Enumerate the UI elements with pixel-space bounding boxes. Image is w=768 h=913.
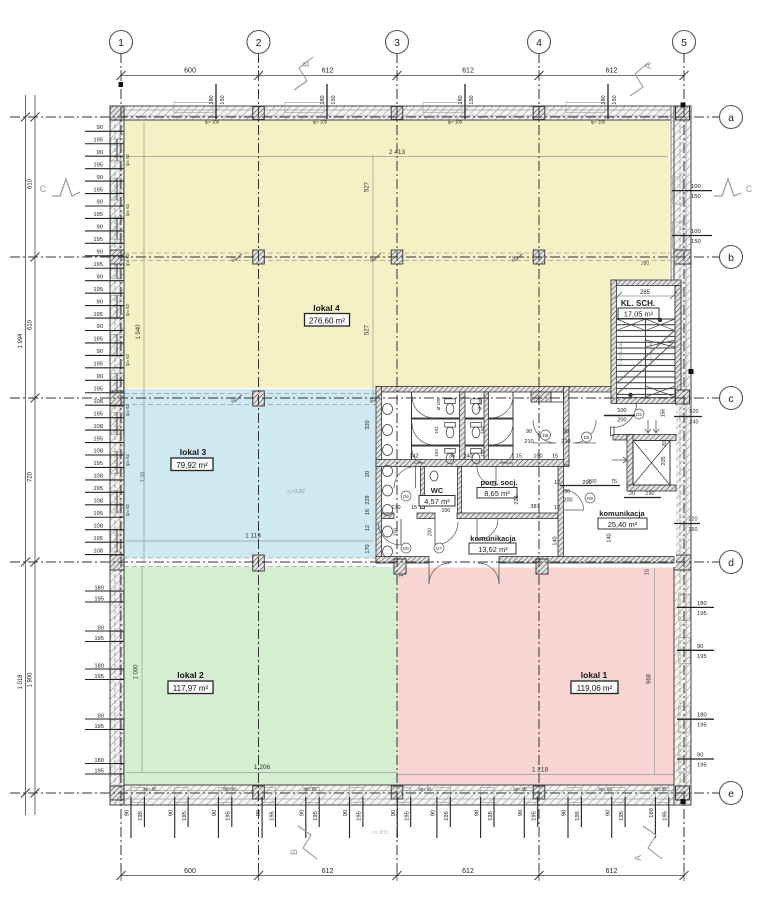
svg-text:90: 90 — [563, 429, 569, 435]
svg-text:180: 180 — [94, 664, 104, 670]
svg-text:90: 90 — [697, 644, 703, 650]
svg-text:bp= 85: bp= 85 — [654, 787, 668, 792]
svg-text:195: 195 — [93, 287, 103, 293]
svg-text:195: 195 — [226, 811, 232, 821]
svg-text:D5: D5 — [543, 433, 549, 438]
svg-text:4: 4 — [536, 37, 542, 49]
svg-text:195: 195 — [313, 811, 319, 821]
svg-text:17 x 17,6 x 28: 17 x 17,6 x 28 — [619, 343, 623, 367]
svg-text:180: 180 — [697, 713, 707, 719]
svg-text:komunikacja: komunikacja — [599, 509, 645, 518]
svg-text:117,97 m²: 117,97 m² — [173, 684, 209, 693]
svg-text:90: 90 — [97, 250, 103, 256]
svg-text:108: 108 — [93, 424, 103, 430]
svg-text:90: 90 — [300, 810, 306, 816]
svg-text:90: 90 — [97, 200, 103, 206]
svg-text:20: 20 — [365, 471, 371, 477]
svg-text:610: 610 — [28, 178, 34, 189]
svg-text:195: 195 — [697, 723, 707, 729]
svg-text:195: 195 — [269, 811, 275, 821]
svg-text:tp= 100: tp= 100 — [448, 120, 463, 125]
svg-text:C: C — [746, 184, 753, 194]
svg-text:90: 90 — [125, 810, 131, 816]
svg-text:140: 140 — [553, 536, 559, 545]
svg-text:101: 101 — [434, 426, 439, 434]
svg-text:100: 100 — [691, 184, 701, 190]
svg-text:tp= 100: tp= 100 — [205, 120, 220, 125]
svg-text:90: 90 — [98, 714, 104, 720]
svg-text:25,40 m²: 25,40 m² — [608, 520, 638, 529]
svg-text:260: 260 — [688, 527, 697, 533]
svg-text:195: 195 — [575, 811, 581, 821]
svg-text:20: 20 — [662, 441, 668, 447]
svg-text:5: 5 — [681, 37, 687, 49]
svg-text:90: 90 — [474, 810, 480, 816]
svg-text:500: 500 — [617, 408, 626, 414]
svg-text:3: 3 — [394, 37, 400, 49]
svg-text:276,60 m²: 276,60 m² — [309, 317, 345, 326]
svg-text:612: 612 — [322, 868, 334, 875]
svg-text:16: 16 — [365, 509, 371, 515]
svg-text:WC: WC — [431, 486, 444, 495]
svg-text:210: 210 — [561, 439, 570, 445]
svg-text:Ø 100: Ø 100 — [478, 397, 483, 410]
svg-text:195: 195 — [663, 811, 669, 821]
svg-text:90: 90 — [526, 429, 532, 435]
svg-text:bp= 85: bp= 85 — [224, 787, 238, 792]
svg-text:200: 200 — [428, 528, 434, 537]
svg-text:200: 200 — [587, 479, 596, 485]
svg-text:90: 90 — [98, 626, 104, 632]
svg-text:200: 200 — [563, 498, 572, 504]
svg-text:90: 90 — [605, 810, 611, 816]
svg-text:e: e — [728, 788, 734, 800]
svg-text:lokal 3: lokal 3 — [180, 447, 207, 457]
svg-text:150: 150 — [691, 194, 701, 200]
svg-text:1 018: 1 018 — [18, 674, 24, 690]
svg-text:tp= 62: tp= 62 — [125, 353, 130, 365]
svg-text:610: 610 — [28, 319, 34, 330]
svg-text:195: 195 — [93, 312, 103, 318]
svg-text:C: C — [40, 184, 47, 194]
svg-text:170: 170 — [391, 505, 400, 511]
svg-text:108: 108 — [93, 523, 103, 529]
svg-text:280: 280 — [641, 261, 650, 267]
svg-text:205: 205 — [661, 456, 667, 465]
svg-text:240: 240 — [463, 454, 472, 460]
svg-text:b: b — [728, 252, 734, 264]
svg-text:195: 195 — [93, 511, 103, 517]
svg-text:1 900: 1 900 — [28, 672, 34, 688]
svg-text:tp= 62: tp= 62 — [125, 303, 130, 315]
svg-text:D2: D2 — [636, 412, 642, 417]
svg-text:612: 612 — [322, 68, 334, 75]
svg-text:90: 90 — [97, 324, 103, 330]
svg-text:387: 387 — [530, 504, 539, 510]
svg-text:265: 265 — [640, 290, 651, 296]
svg-text:90: 90 — [97, 349, 103, 355]
svg-text:79,92 m²: 79,92 m² — [176, 461, 208, 470]
svg-text:90: 90 — [97, 274, 103, 280]
svg-text:195: 195 — [93, 461, 103, 467]
svg-text:lokal 4: lokal 4 — [313, 303, 340, 313]
svg-text:103: 103 — [434, 449, 439, 457]
svg-text:12: 12 — [365, 525, 371, 531]
svg-text:1 206: 1 206 — [254, 764, 271, 771]
svg-text:90: 90 — [391, 810, 397, 816]
svg-text:bp= 85: bp= 85 — [599, 787, 613, 792]
svg-text:90: 90 — [97, 125, 103, 131]
svg-text:20: 20 — [629, 491, 635, 497]
svg-text:108: 108 — [93, 399, 103, 405]
svg-text:210: 210 — [524, 439, 533, 445]
svg-text:12: 12 — [554, 505, 560, 511]
svg-text:150: 150 — [533, 454, 542, 460]
svg-text:r.d. Ø15: r.d. Ø15 — [371, 830, 389, 836]
svg-text:1 994: 1 994 — [18, 333, 24, 349]
svg-text:15: 15 — [411, 505, 417, 511]
svg-text:63: 63 — [369, 397, 375, 403]
svg-text:108: 108 — [93, 449, 103, 455]
svg-text:a: a — [728, 112, 734, 124]
svg-text:lokal 1: lokal 1 — [581, 670, 608, 680]
svg-text:150: 150 — [691, 239, 701, 245]
svg-text:229: 229 — [514, 495, 520, 504]
svg-text:195: 195 — [93, 362, 103, 368]
svg-text:320: 320 — [365, 420, 371, 429]
svg-text:156: 156 — [661, 409, 667, 418]
svg-text:90: 90 — [97, 150, 103, 156]
svg-text:lokal 2: lokal 2 — [177, 670, 204, 680]
svg-text:15: 15 — [552, 454, 558, 460]
svg-text:1 940: 1 940 — [136, 324, 142, 340]
svg-text:180: 180 — [649, 808, 655, 818]
svg-text:90: 90 — [97, 225, 103, 231]
svg-text:15: 15 — [516, 454, 522, 460]
svg-text:D6: D6 — [403, 546, 409, 551]
svg-text:bp= 85: bp= 85 — [304, 787, 318, 792]
svg-text:63: 63 — [231, 397, 237, 403]
svg-text:tp= 62: tp= 62 — [125, 453, 130, 465]
svg-text:150: 150 — [469, 95, 475, 104]
svg-text:180: 180 — [320, 95, 326, 104]
svg-text:12: 12 — [554, 480, 560, 486]
svg-text:90: 90 — [431, 810, 437, 816]
svg-text:90: 90 — [343, 810, 349, 816]
svg-text:612: 612 — [462, 68, 474, 75]
svg-text:△+3,82: △+3,82 — [287, 489, 305, 495]
svg-text:195: 195 — [94, 724, 104, 730]
svg-text:195: 195 — [93, 486, 103, 492]
svg-text:90: 90 — [697, 753, 703, 759]
svg-text:195: 195 — [93, 536, 103, 542]
svg-text:150: 150 — [331, 95, 337, 104]
svg-text:90: 90 — [168, 810, 174, 816]
svg-text:104: 104 — [480, 426, 485, 434]
svg-text:200: 200 — [617, 418, 626, 424]
svg-text:tp= 62: tp= 62 — [125, 253, 130, 265]
svg-text:195: 195 — [93, 137, 103, 143]
svg-text:527: 527 — [365, 324, 371, 335]
svg-text:B: B — [289, 849, 299, 855]
svg-text:195: 195 — [93, 411, 103, 417]
svg-text:A: A — [633, 855, 643, 861]
svg-text:190: 190 — [645, 491, 654, 497]
svg-text:A: A — [643, 63, 653, 69]
svg-text:tp= 62: tp= 62 — [125, 203, 130, 215]
svg-text:195: 195 — [93, 237, 103, 243]
svg-text:D7: D7 — [436, 546, 442, 551]
svg-text:195: 195 — [532, 811, 538, 821]
svg-text:d: d — [728, 557, 734, 569]
svg-text:612: 612 — [462, 868, 474, 875]
svg-text:36: 36 — [449, 454, 455, 460]
svg-text:150: 150 — [220, 95, 226, 104]
svg-text:D5: D5 — [584, 435, 590, 440]
svg-text:195: 195 — [93, 436, 103, 442]
svg-text:bp= 85: bp= 85 — [144, 787, 158, 792]
svg-text:520: 520 — [689, 409, 698, 415]
svg-text:1 218: 1 218 — [532, 767, 549, 774]
svg-text:150: 150 — [612, 95, 618, 104]
svg-text:63: 63 — [231, 256, 237, 262]
svg-text:180: 180 — [601, 95, 607, 104]
svg-text:195: 195 — [94, 597, 104, 603]
svg-text:Ø 100: Ø 100 — [436, 397, 441, 410]
svg-text:195: 195 — [444, 811, 450, 821]
svg-text:195: 195 — [93, 262, 103, 268]
svg-text:90: 90 — [518, 810, 524, 816]
svg-text:195: 195 — [93, 212, 103, 218]
svg-text:1 000: 1 000 — [134, 664, 140, 680]
svg-text:195: 195 — [405, 811, 411, 821]
svg-text:240: 240 — [689, 420, 698, 426]
svg-text:90: 90 — [97, 374, 103, 380]
svg-text:108: 108 — [93, 548, 103, 554]
svg-text:612: 612 — [606, 868, 618, 875]
svg-text:2: 2 — [256, 37, 262, 49]
svg-text:119,06 m²: 119,06 m² — [577, 684, 613, 693]
svg-text:90: 90 — [562, 810, 568, 816]
svg-text:108: 108 — [93, 499, 103, 505]
svg-text:90: 90 — [97, 175, 103, 181]
svg-text:7,20: 7,20 — [141, 472, 147, 483]
svg-text:195: 195 — [697, 611, 707, 617]
svg-text:17,05 m²: 17,05 m² — [624, 310, 654, 319]
svg-text:D6: D6 — [403, 494, 409, 499]
svg-text:195: 195 — [357, 811, 363, 821]
svg-text:180: 180 — [94, 586, 104, 592]
svg-text:140: 140 — [607, 533, 613, 542]
svg-text:195: 195 — [488, 811, 494, 821]
svg-text:170: 170 — [365, 544, 371, 553]
svg-text:600: 600 — [184, 868, 196, 875]
svg-text:17 x 17,6 x 28: 17 x 17,6 x 28 — [649, 343, 653, 367]
svg-text:180: 180 — [94, 758, 104, 764]
svg-text:1: 1 — [118, 37, 124, 49]
svg-text:612: 612 — [606, 68, 618, 75]
svg-text:195: 195 — [94, 674, 104, 680]
svg-text:90: 90 — [212, 810, 218, 816]
svg-text:tp= 62: tp= 62 — [125, 153, 130, 165]
svg-text:108: 108 — [93, 474, 103, 480]
svg-text:63: 63 — [369, 256, 375, 262]
svg-text:D8: D8 — [587, 496, 593, 501]
svg-text:229: 229 — [365, 495, 371, 504]
svg-text:195: 195 — [93, 162, 103, 168]
svg-text:tp= 100: tp= 100 — [313, 120, 328, 125]
svg-text:13,62 m²: 13,62 m² — [478, 545, 508, 554]
svg-text:B: B — [301, 61, 311, 67]
svg-text:90: 90 — [97, 299, 103, 305]
svg-text:600: 600 — [184, 68, 196, 75]
svg-text:180: 180 — [697, 601, 707, 607]
svg-text:720: 720 — [28, 471, 34, 482]
svg-text:tp= 62: tp= 62 — [125, 403, 130, 415]
svg-text:tp= 62: tp= 62 — [125, 503, 130, 515]
svg-text:KL. SCH.: KL. SCH. — [621, 299, 655, 308]
svg-text:75: 75 — [611, 479, 617, 485]
svg-text:220: 220 — [688, 517, 697, 523]
svg-text:90: 90 — [256, 810, 262, 816]
svg-text:195: 195 — [94, 636, 104, 642]
svg-text:195: 195 — [94, 769, 104, 775]
svg-text:200: 200 — [442, 508, 451, 514]
svg-text:195: 195 — [93, 337, 103, 343]
svg-text:180: 180 — [209, 95, 215, 104]
svg-text:100: 100 — [691, 229, 701, 235]
svg-text:8,65 m²: 8,65 m² — [484, 489, 510, 498]
svg-text:195: 195 — [182, 811, 188, 821]
svg-text:342: 342 — [409, 454, 418, 460]
svg-text:180: 180 — [458, 95, 464, 104]
svg-text:195: 195 — [697, 763, 707, 769]
svg-text:bp= 85: bp= 85 — [514, 787, 528, 792]
svg-text:105: 105 — [480, 449, 485, 457]
svg-text:195: 195 — [697, 654, 707, 660]
svg-text:c: c — [728, 393, 733, 405]
svg-text:bp= 85: bp= 85 — [419, 787, 433, 792]
svg-text:968: 968 — [647, 673, 653, 684]
svg-text:195: 195 — [93, 386, 103, 392]
svg-text:15: 15 — [645, 569, 651, 575]
svg-text:527: 527 — [365, 181, 371, 192]
svg-text:4,57 m²: 4,57 m² — [424, 497, 450, 506]
svg-text:195: 195 — [619, 811, 625, 821]
svg-text:tp= 100: tp= 100 — [591, 120, 606, 125]
svg-text:195: 195 — [138, 811, 144, 821]
svg-text:195: 195 — [93, 187, 103, 193]
svg-text:63: 63 — [511, 256, 517, 262]
